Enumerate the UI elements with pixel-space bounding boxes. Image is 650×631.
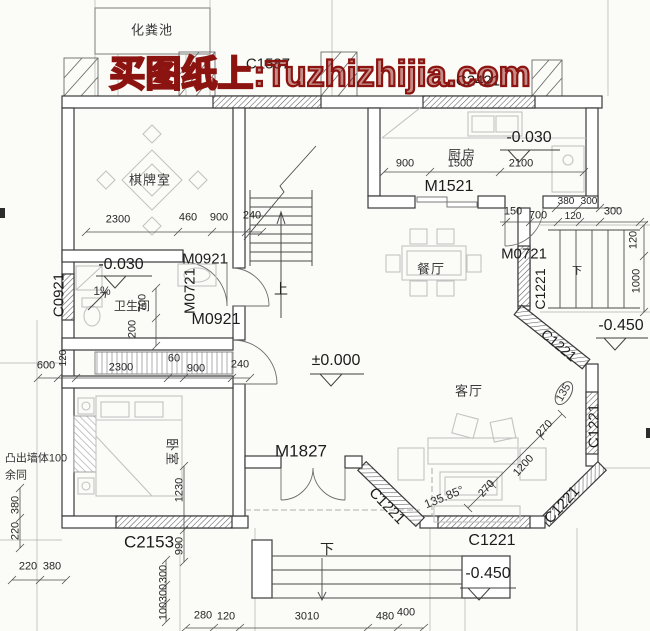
dim-chess-240: 240	[243, 211, 261, 222]
window-c0921-label: C0921	[52, 273, 67, 317]
dim-bedroom-1230: 1230	[175, 478, 186, 502]
main-elevation: ±0.000	[312, 353, 361, 369]
dim-chess-2300: 2300	[106, 215, 130, 226]
dim-kitchen-2100: 2100	[509, 159, 533, 170]
dim-mid-60: 60	[168, 354, 180, 365]
side-steps-down-label: 下	[572, 267, 582, 277]
front-outdoor-elevation: -0.450	[465, 566, 510, 582]
slope-note: 1%	[93, 285, 110, 297]
dim-bottom-480: 480	[376, 612, 394, 623]
dim-bottom-400: 400	[397, 608, 415, 619]
bath-elevation: -0.030	[98, 257, 143, 273]
bedroom-label: 卧室	[166, 438, 179, 466]
door-m0721-bath-label: M0721	[183, 268, 198, 314]
chess-room-label: 棋牌室	[129, 174, 171, 187]
dim-sub-300b: 300	[604, 207, 622, 218]
plan-linework	[0, 0, 650, 631]
dim-bedroom-990: 990	[175, 537, 186, 555]
door-m0721-side-label: M0721	[501, 247, 547, 262]
dim-bottom-280: 280	[194, 611, 212, 622]
kitchen-elevation: -0.030	[506, 130, 551, 146]
watermark: 买图纸上:Tuzhizhijia.com	[109, 56, 530, 92]
window-c1221-side-label: C1221	[533, 268, 547, 309]
right-outdoor-elevation: -0.450	[598, 318, 643, 334]
dim-kitchen-900: 900	[396, 159, 414, 170]
dining-room-label: 餐厅	[417, 263, 445, 276]
dim-mid-600: 600	[37, 361, 55, 372]
dim-bottom-3010: 3010	[295, 612, 319, 623]
side-steps	[548, 230, 640, 308]
grid-lines	[0, 0, 650, 631]
door-m0921-chess-label: M0921	[182, 252, 228, 267]
dim-steps-300a: 300	[159, 565, 170, 583]
dim-left-220: 220	[11, 522, 22, 540]
door-m0921-bedroom-label: M0921	[192, 312, 241, 328]
dim-chess-460: 460	[179, 213, 197, 224]
dim-sub-380: 380	[558, 197, 575, 207]
septic-tank-label: 化粪池	[131, 24, 173, 37]
living-room-label: 客厅	[455, 385, 483, 398]
window-c1221-east-label: C1221	[587, 404, 602, 448]
dim-mid-2300: 2300	[109, 363, 133, 374]
door-m1521-label: M1521	[425, 179, 474, 195]
dim-steps-100: 100	[159, 602, 170, 620]
dim-leftbottom-220: 220	[19, 562, 37, 573]
dim-bottom-120: 120	[217, 612, 235, 623]
window-c1221-south-label: C1221	[468, 533, 515, 549]
window-c2153-label: C2153	[124, 534, 174, 551]
dim-leftbottom-380: 380	[43, 562, 61, 573]
dim-sub-700: 700	[529, 211, 547, 222]
dim-sub-300a: 300	[581, 197, 598, 207]
dim-kitchen-1500: 1500	[448, 159, 472, 170]
furniture	[76, 108, 586, 522]
dim-mid-120: 120	[59, 350, 69, 367]
dimension-lines	[8, 168, 648, 631]
wardrobe	[74, 416, 96, 472]
wall-protrusion-note: 凸出墙体100	[5, 454, 67, 465]
dim-steps-300b: 300	[159, 584, 170, 602]
dim-mid-900: 900	[187, 364, 205, 375]
dim-right-120: 120	[629, 231, 640, 249]
dim-sub-150: 150	[504, 207, 522, 218]
dim-bath-200: 200	[128, 320, 139, 338]
front-steps-down-label: 下	[320, 542, 334, 556]
dim-chess-900: 900	[210, 213, 228, 224]
dim-bath-700: 700	[138, 294, 149, 312]
dim-mid-240: 240	[231, 360, 249, 371]
same-note: 余同	[5, 471, 27, 482]
door-m1827-label: M1827	[275, 443, 327, 460]
floor-plan: 化粪池 棋牌室 厨房 卫生间 餐厅 客厅 卧室 -0.030 -0.030 ±0…	[0, 0, 650, 631]
dim-sub-120: 120	[565, 212, 582, 222]
stairs-up-label: 上	[274, 282, 288, 296]
dim-right-1000: 1000	[632, 269, 643, 293]
scan-mark-right	[646, 428, 650, 438]
scan-mark-left	[0, 208, 5, 218]
dim-left-380: 380	[11, 496, 22, 514]
